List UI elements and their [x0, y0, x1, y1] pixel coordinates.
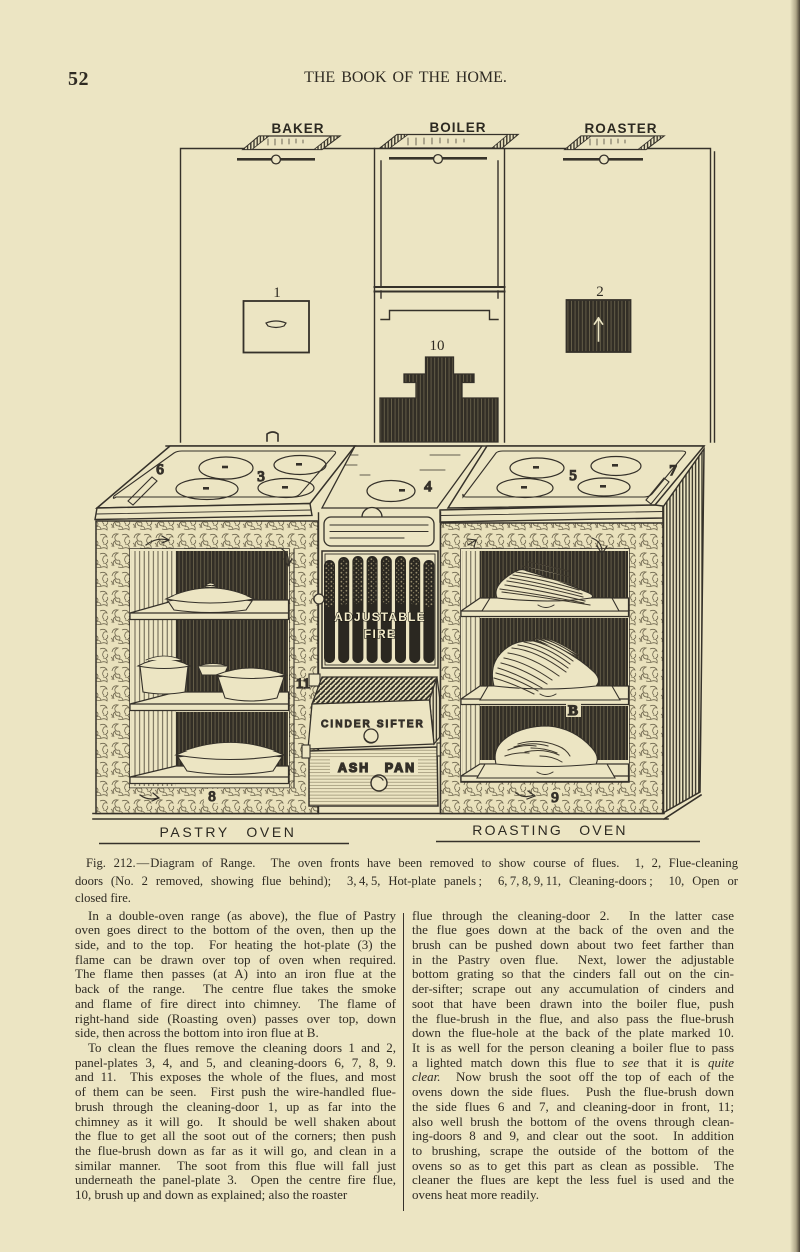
svg-text:B: B [568, 703, 578, 719]
svg-text:1: 1 [273, 285, 281, 301]
svg-text:ADJUSTABLE: ADJUSTABLE [334, 610, 426, 624]
svg-text:8: 8 [208, 789, 216, 805]
svg-text:5: 5 [569, 468, 577, 484]
svg-text:7: 7 [669, 463, 677, 479]
svg-text:6: 6 [156, 462, 164, 478]
svg-text:ROASTER: ROASTER [584, 121, 657, 136]
svg-text:ROASTING OVEN: ROASTING OVEN [472, 822, 627, 838]
svg-text:4: 4 [424, 479, 432, 495]
svg-text:11: 11 [296, 676, 310, 692]
svg-text:9: 9 [551, 790, 559, 806]
svg-text:10: 10 [430, 338, 445, 354]
svg-text:BAKER: BAKER [271, 121, 324, 136]
svg-text:CINDER SIFTER: CINDER SIFTER [321, 719, 425, 730]
svg-text:BOILER: BOILER [429, 120, 486, 135]
svg-text:3: 3 [257, 469, 265, 485]
svg-text:FIRE: FIRE [364, 627, 396, 641]
svg-text:ASH PAN: ASH PAN [338, 761, 416, 775]
svg-text:PASTRY OVEN: PASTRY OVEN [160, 824, 297, 840]
svg-text:2: 2 [596, 284, 604, 300]
